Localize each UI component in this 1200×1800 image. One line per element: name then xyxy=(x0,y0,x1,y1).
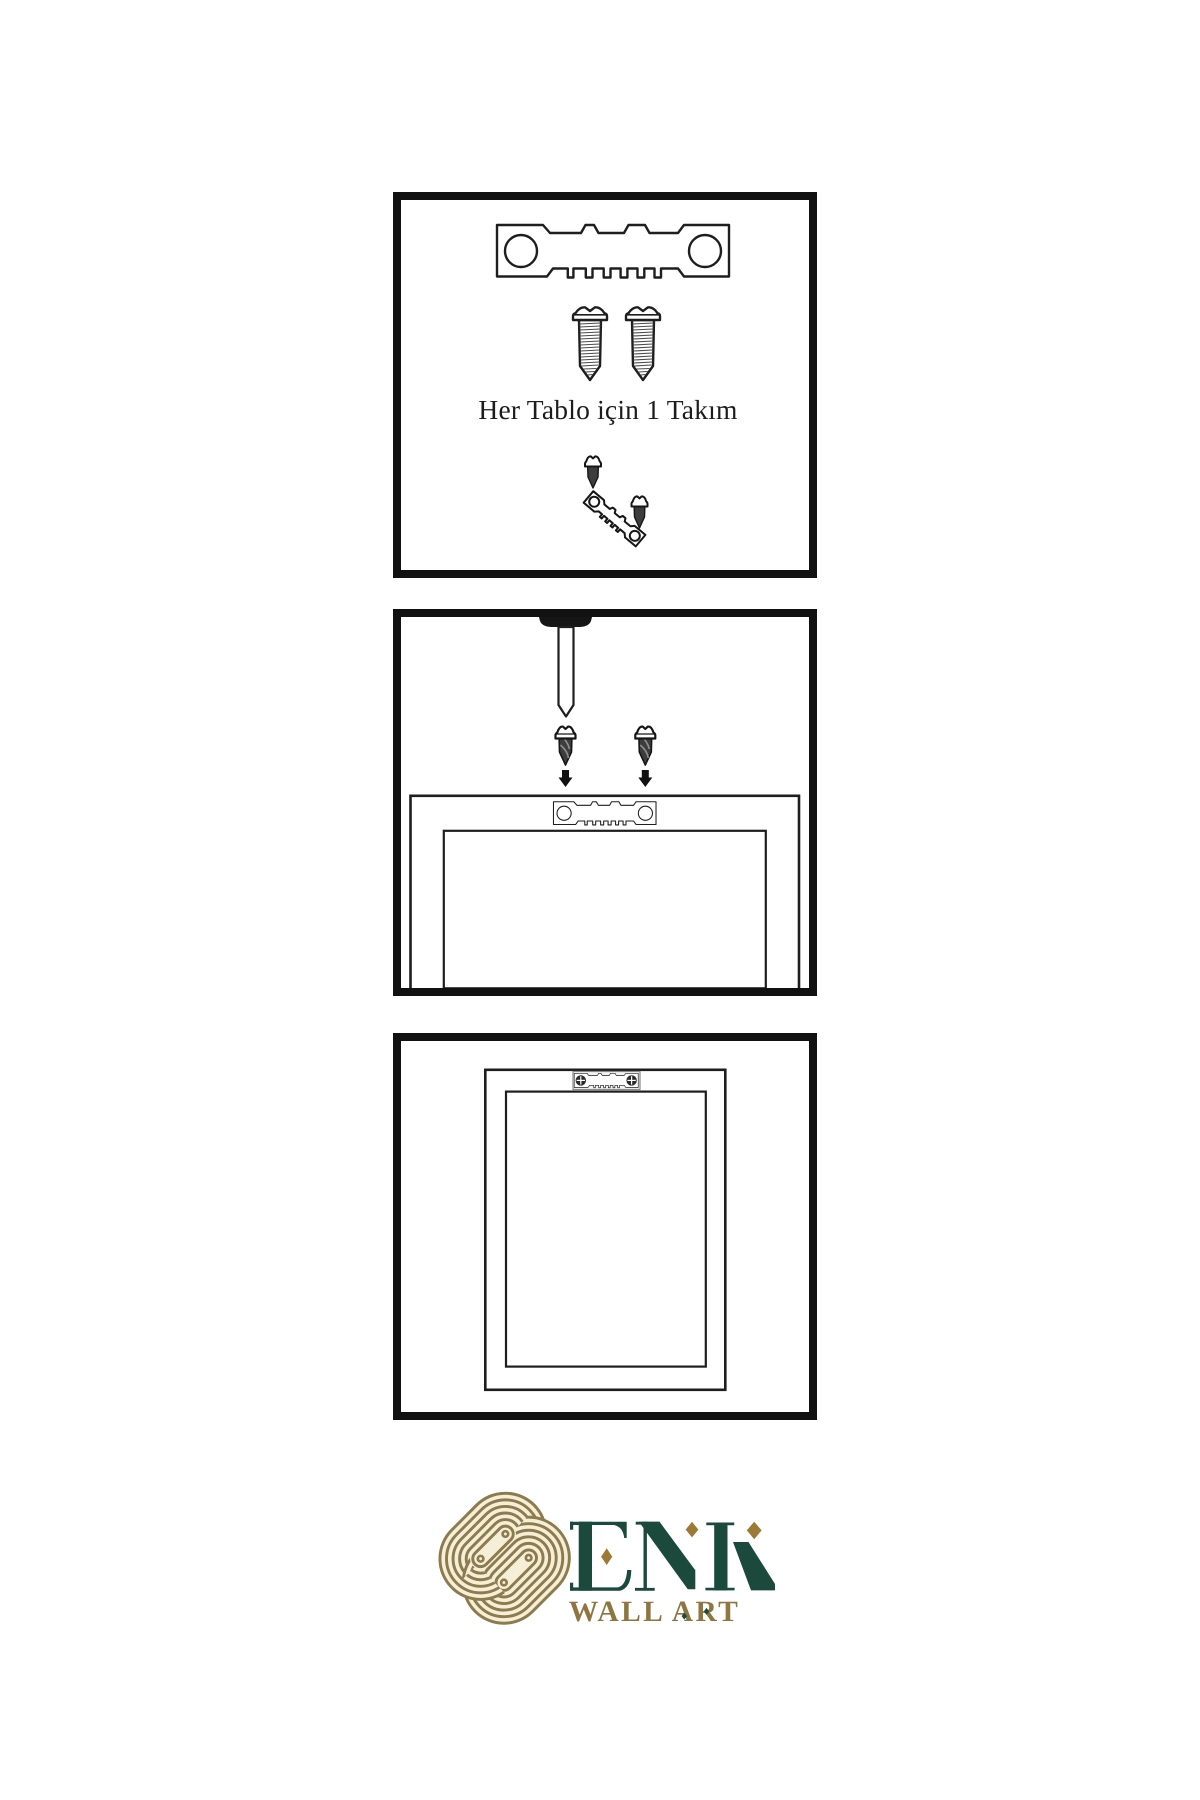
svg-text:Her Tablo için 1 Takım: Her Tablo için 1 Takım xyxy=(478,394,737,425)
svg-text:WALL ART: WALL ART xyxy=(569,1596,740,1628)
